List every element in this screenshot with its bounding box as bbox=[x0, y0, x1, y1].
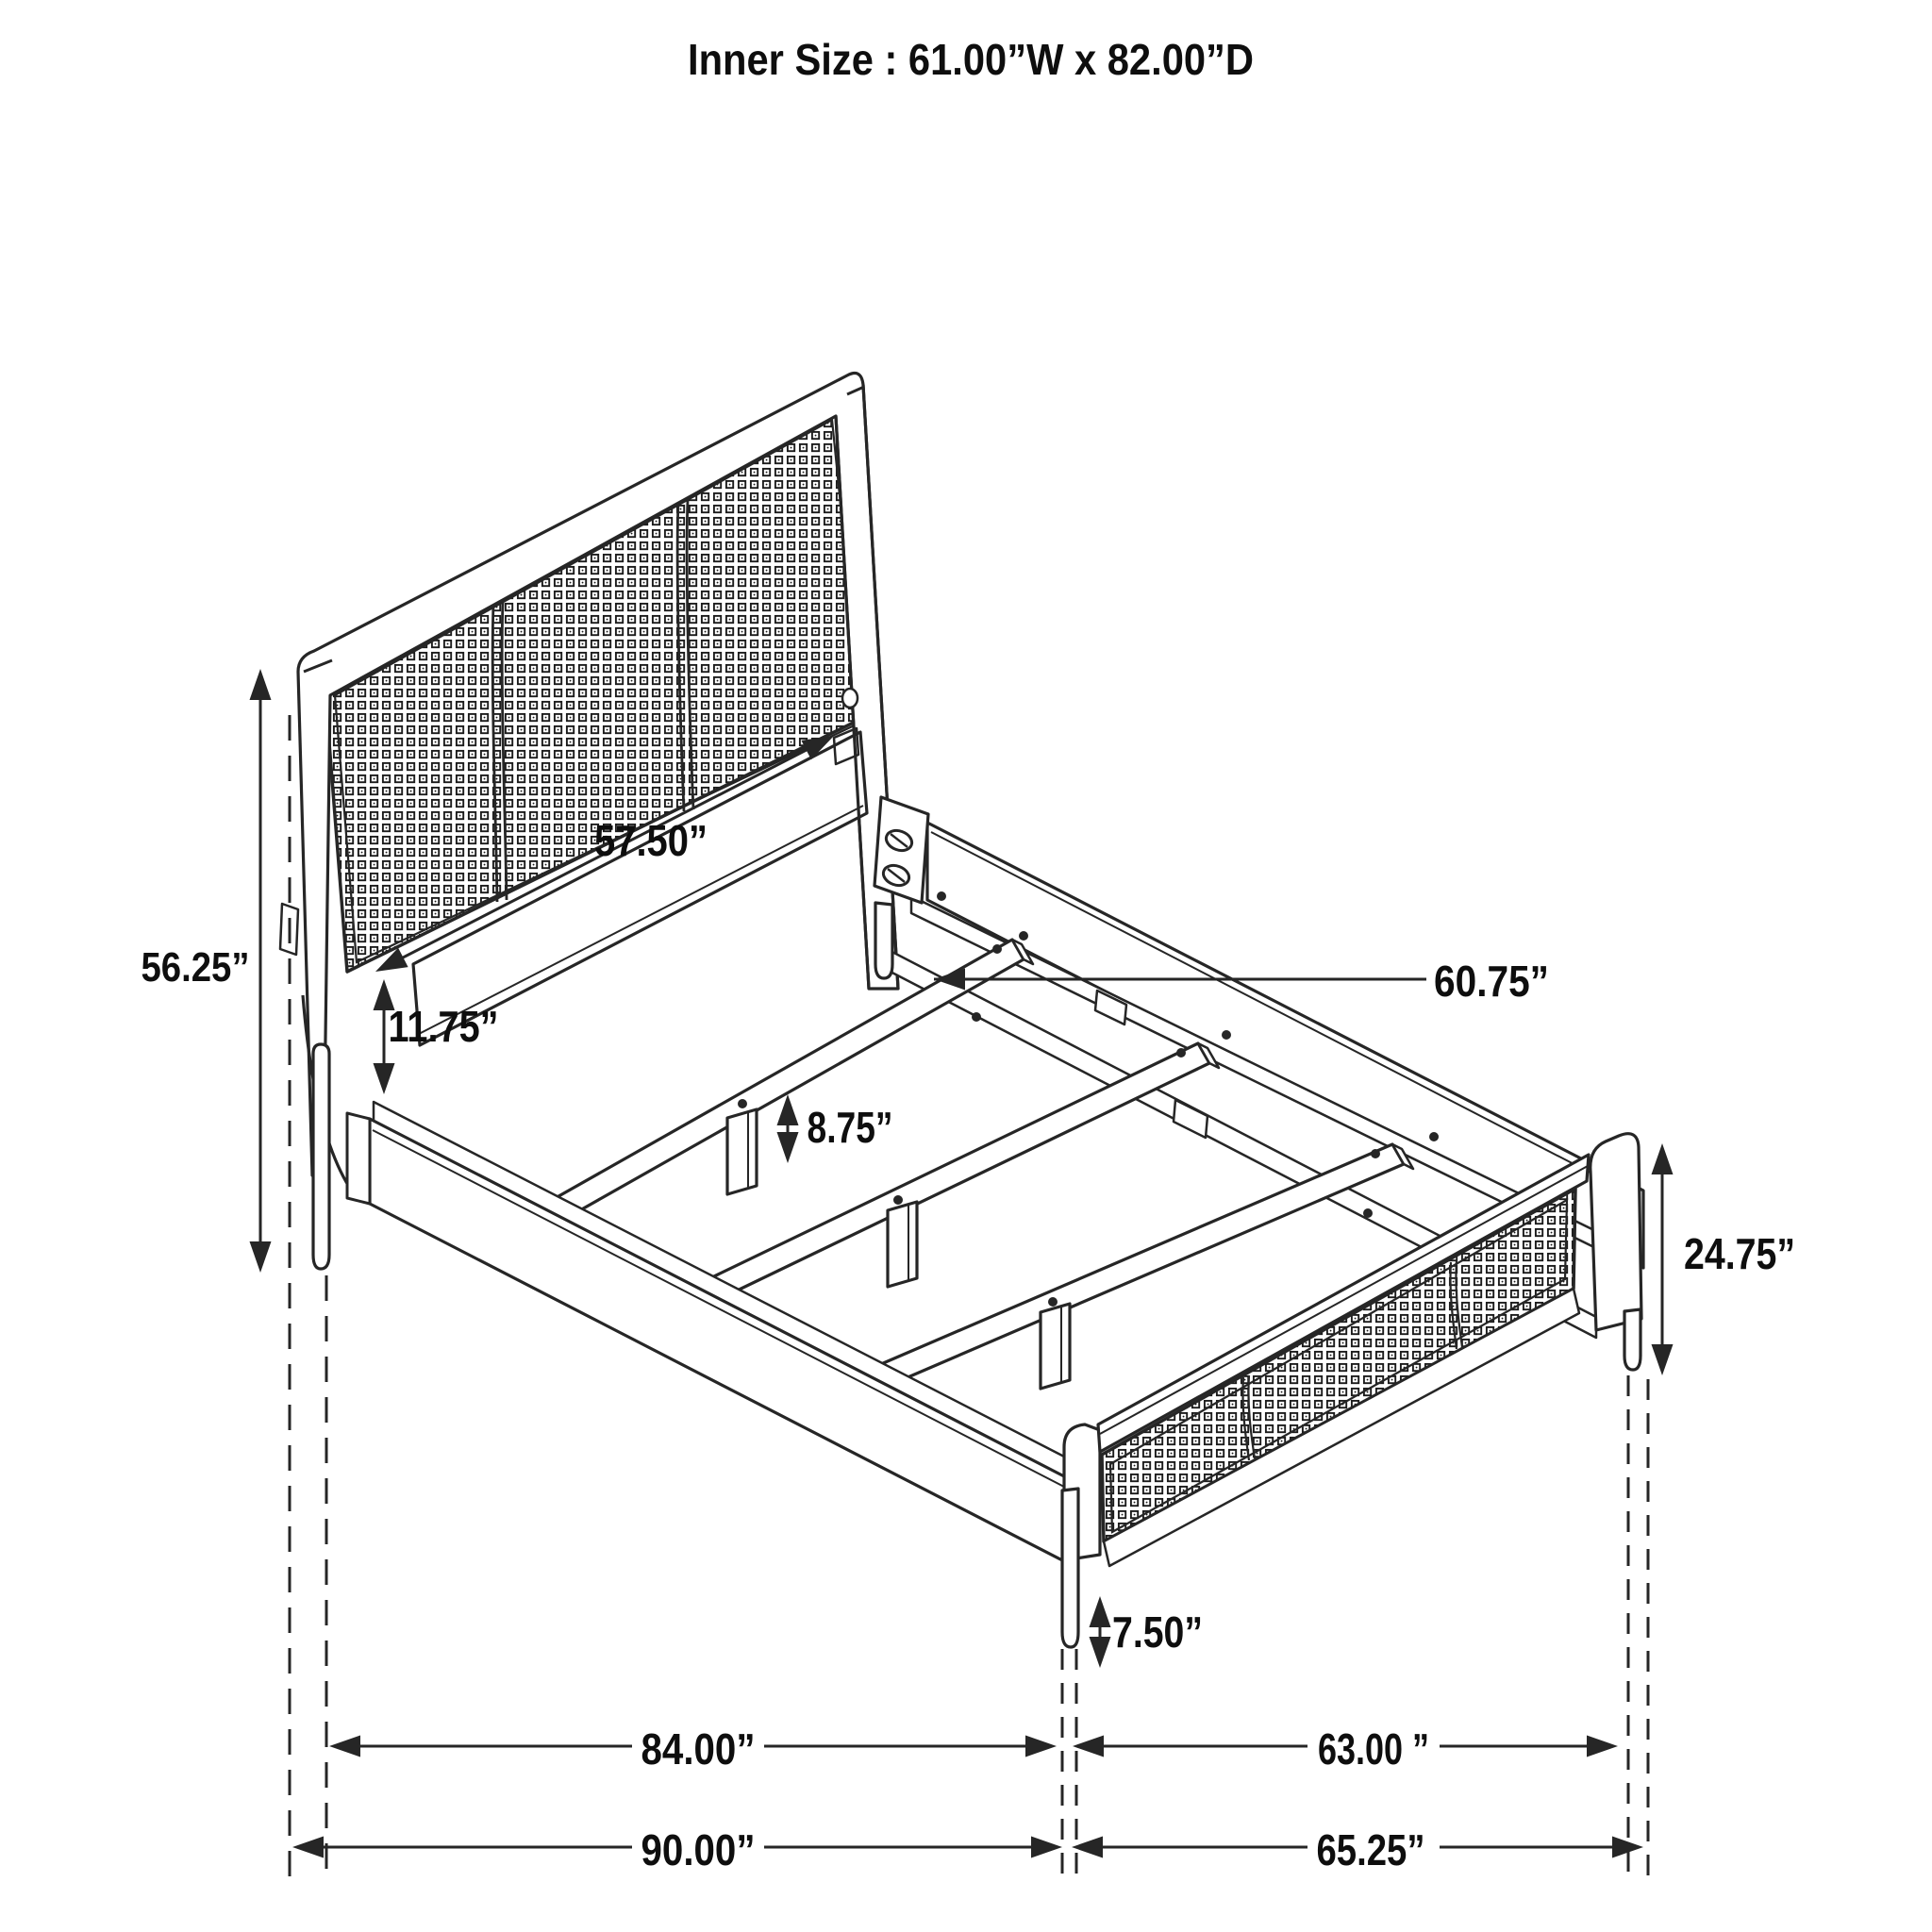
svg-text:57.50”: 57.50” bbox=[594, 816, 708, 865]
svg-text:24.75”: 24.75” bbox=[1684, 1229, 1795, 1278]
svg-text:60.75”: 60.75” bbox=[1434, 957, 1549, 1006]
svg-text:84.00”: 84.00” bbox=[641, 1724, 756, 1774]
svg-text:8.75”: 8.75” bbox=[808, 1103, 893, 1152]
svg-text:11.75”: 11.75” bbox=[389, 1002, 499, 1051]
svg-text:7.50”: 7.50” bbox=[1112, 1607, 1203, 1657]
svg-text:63.00 ”: 63.00 ” bbox=[1318, 1724, 1429, 1774]
svg-text:56.25”: 56.25” bbox=[142, 944, 250, 991]
svg-text:90.00”: 90.00” bbox=[641, 1825, 756, 1874]
svg-text:65.25”: 65.25” bbox=[1317, 1825, 1425, 1874]
svg-text:Inner Size : 61.00”W x 82.00”D: Inner Size : 61.00”W x 82.00”D bbox=[688, 35, 1254, 84]
